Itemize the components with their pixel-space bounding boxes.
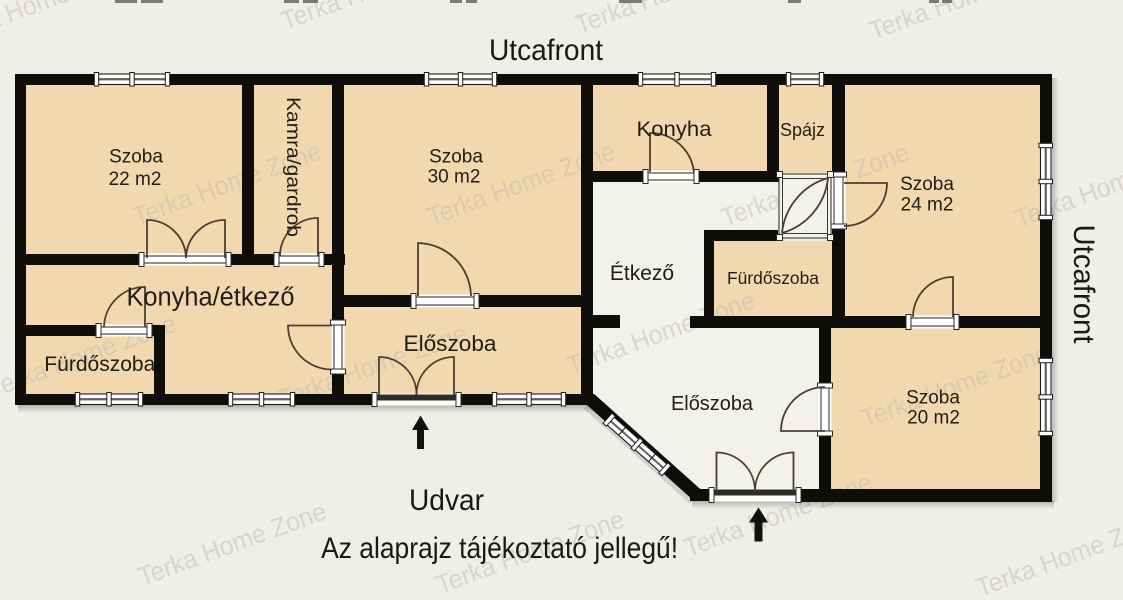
svg-text:Fürdőszoba: Fürdőszoba — [727, 268, 819, 288]
svg-text:30 m2: 30 m2 — [428, 167, 481, 188]
svg-text:Előszoba: Előszoba — [671, 393, 754, 415]
svg-text:Szoba: Szoba — [906, 388, 960, 409]
svg-text:Spájz: Spájz — [780, 120, 825, 140]
svg-text:Kamra/gardrob: Kamra/gardrob — [282, 97, 304, 237]
svg-text:Utcafront: Utcafront — [489, 34, 604, 67]
svg-text:Szoba: Szoba — [900, 174, 954, 195]
svg-text:Utcafront: Utcafront — [1067, 225, 1100, 345]
svg-text:Előszoba: Előszoba — [404, 331, 497, 356]
svg-text:20 m2: 20 m2 — [907, 408, 960, 429]
svg-text:Konyha: Konyha — [637, 117, 712, 141]
svg-text:Étkező: Étkező — [610, 262, 674, 285]
svg-text:Udvar: Udvar — [409, 484, 484, 517]
svg-text:Fürdőszoba: Fürdőszoba — [44, 353, 155, 376]
svg-text:24 m2: 24 m2 — [901, 195, 954, 216]
svg-text:22 m2: 22 m2 — [109, 169, 162, 190]
svg-text:Szoba: Szoba — [109, 147, 163, 168]
svg-text:Az alaprajz tájékoztató jelleg: Az alaprajz tájékoztató jellegű! — [321, 532, 678, 565]
svg-text:Szoba: Szoba — [429, 147, 483, 168]
svg-text:Konyha/étkező: Konyha/étkező — [127, 284, 295, 312]
